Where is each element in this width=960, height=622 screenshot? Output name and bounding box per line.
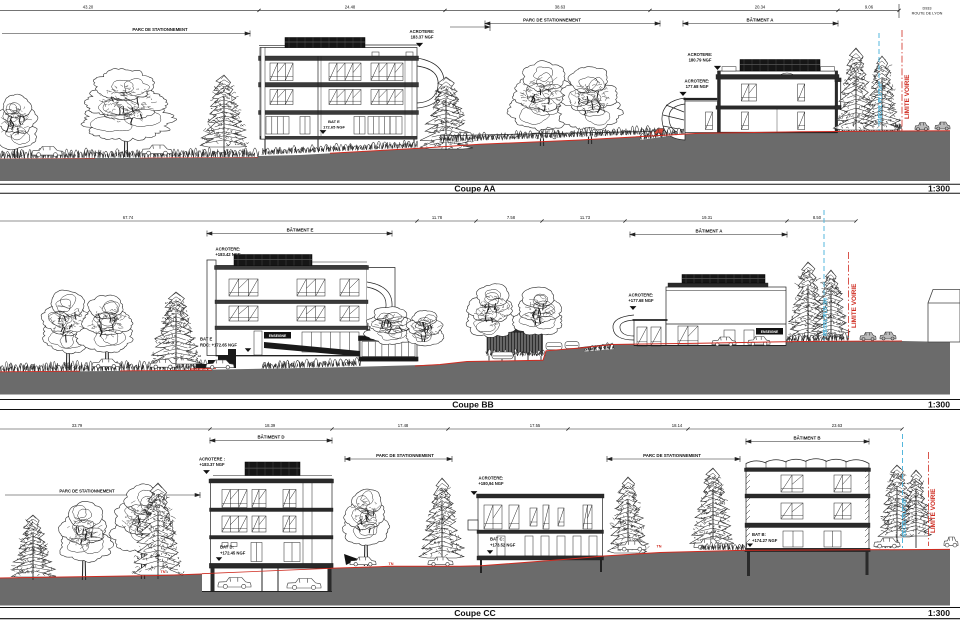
svg-text:ACROTERE:: ACROTERE: (479, 476, 504, 481)
svg-text:18.39: 18.39 (265, 423, 276, 428)
svg-text:BÂTIMENT E: BÂTIMENT E (287, 227, 314, 232)
svg-text:17.55: 17.55 (530, 423, 541, 428)
svg-text:+172.45 NGF: +172.45 NGF (220, 551, 246, 556)
svg-text:+177.68 NGF: +177.68 NGF (628, 298, 654, 303)
svg-text:18.14: 18.14 (672, 423, 683, 428)
svg-text:24.48: 24.48 (345, 5, 356, 10)
svg-text:ACROTERE :: ACROTERE : (199, 457, 225, 462)
svg-text:1:300: 1:300 (928, 184, 950, 194)
svg-text:ACROTERE:: ACROTERE: (688, 52, 713, 57)
svg-text:TN: TN (656, 545, 661, 549)
svg-text:9.06: 9.06 (865, 5, 874, 10)
svg-text:TN: TN (160, 570, 165, 574)
svg-text:TN: TN (388, 562, 393, 566)
svg-text:Coupe AA: Coupe AA (454, 183, 495, 193)
svg-text:33.79: 33.79 (72, 423, 83, 428)
svg-text:38.63: 38.63 (555, 5, 566, 10)
svg-text:RECUL PLU 3m: RECUL PLU 3m (878, 83, 884, 122)
svg-text:LIMITE VOIRIE: LIMITE VOIRIE (851, 283, 858, 328)
svg-text:LIMITE VOIRIE: LIMITE VOIRIE (930, 488, 937, 533)
svg-text:11.78: 11.78 (432, 215, 443, 220)
svg-text:BAT E: BAT E (328, 119, 340, 124)
svg-text:RDC: +172.65 NGF: RDC: +172.65 NGF (200, 343, 237, 348)
svg-text:ROUTE DE LYON: ROUTE DE LYON (912, 12, 943, 16)
svg-text:BAT B:: BAT B: (752, 532, 766, 537)
svg-text:19.31: 19.31 (702, 215, 713, 220)
svg-text:20.34: 20.34 (755, 5, 766, 10)
svg-text:RECUL PLU 3m: RECUL PLU 3m (902, 498, 908, 537)
svg-text:Coupe BB: Coupe BB (452, 399, 494, 409)
svg-text:67.74: 67.74 (123, 215, 134, 220)
svg-text:8.50: 8.50 (813, 215, 822, 220)
svg-text:PARC DE STATIONNEMENT: PARC DE STATIONNEMENT (376, 453, 434, 458)
svg-text:+173.52 NGF: +173.52 NGF (490, 543, 516, 548)
svg-text:7.58: 7.58 (507, 215, 516, 220)
svg-text:D933: D933 (922, 7, 931, 11)
svg-text:ACROTERE:: ACROTERE: (685, 79, 710, 84)
svg-text:PARC DE STATIONNEMENT: PARC DE STATIONNEMENT (643, 453, 701, 458)
svg-text:177.68 NGF: 177.68 NGF (686, 84, 709, 89)
svg-text:BÂTIMENT A: BÂTIMENT A (696, 228, 724, 233)
svg-text:ACROTERE:: ACROTERE: (216, 247, 241, 252)
svg-text:1:300: 1:300 (928, 608, 950, 618)
svg-text:ENSEIGNE: ENSEIGNE (761, 330, 779, 334)
svg-text:+174.27 NGF: +174.27 NGF (752, 538, 778, 543)
svg-text:BÂTIMENT B: BÂTIMENT B (793, 435, 820, 440)
svg-text:23.63: 23.63 (832, 423, 843, 428)
svg-text:BAT E: BAT E (200, 337, 212, 342)
svg-text:BAT D:: BAT D: (220, 545, 234, 550)
svg-text:43.20: 43.20 (83, 5, 94, 10)
svg-text:ACROTERE:: ACROTERE: (410, 29, 435, 34)
svg-text:183.37 NGF: 183.37 NGF (411, 35, 434, 40)
svg-text:180.79 NGF: 180.79 NGF (689, 58, 712, 63)
svg-text:172.65 NGF: 172.65 NGF (323, 125, 345, 130)
svg-text:PARC DE STATIONNEMENT: PARC DE STATIONNEMENT (523, 17, 581, 22)
svg-text:ENSEIGNE: ENSEIGNE (269, 334, 287, 338)
svg-text:BÂTIMENT D: BÂTIMENT D (257, 434, 284, 439)
svg-text:RECUL PLU 3m: RECUL PLU 3m (823, 297, 829, 336)
svg-text:PARC DE STATIONNEMENT: PARC DE STATIONNEMENT (132, 27, 188, 32)
svg-text:BAT C:: BAT C: (490, 537, 504, 542)
svg-text:BÂTIMENT A: BÂTIMENT A (747, 17, 775, 22)
svg-text:17.48: 17.48 (398, 423, 409, 428)
svg-text:ACROTERE:: ACROTERE: (629, 293, 654, 298)
svg-text:Coupe CC: Coupe CC (454, 608, 496, 618)
svg-text:1:300: 1:300 (928, 400, 950, 410)
svg-text:+180,94 NGF: +180,94 NGF (478, 481, 504, 486)
svg-text:PARC DE STATIONNEMENT: PARC DE STATIONNEMENT (59, 489, 115, 494)
svg-text:+183.37 NGF: +183.37 NGF (199, 462, 225, 467)
svg-text:LIMITE VOIRIE: LIMITE VOIRIE (904, 74, 911, 119)
svg-text:11.73: 11.73 (580, 215, 591, 220)
